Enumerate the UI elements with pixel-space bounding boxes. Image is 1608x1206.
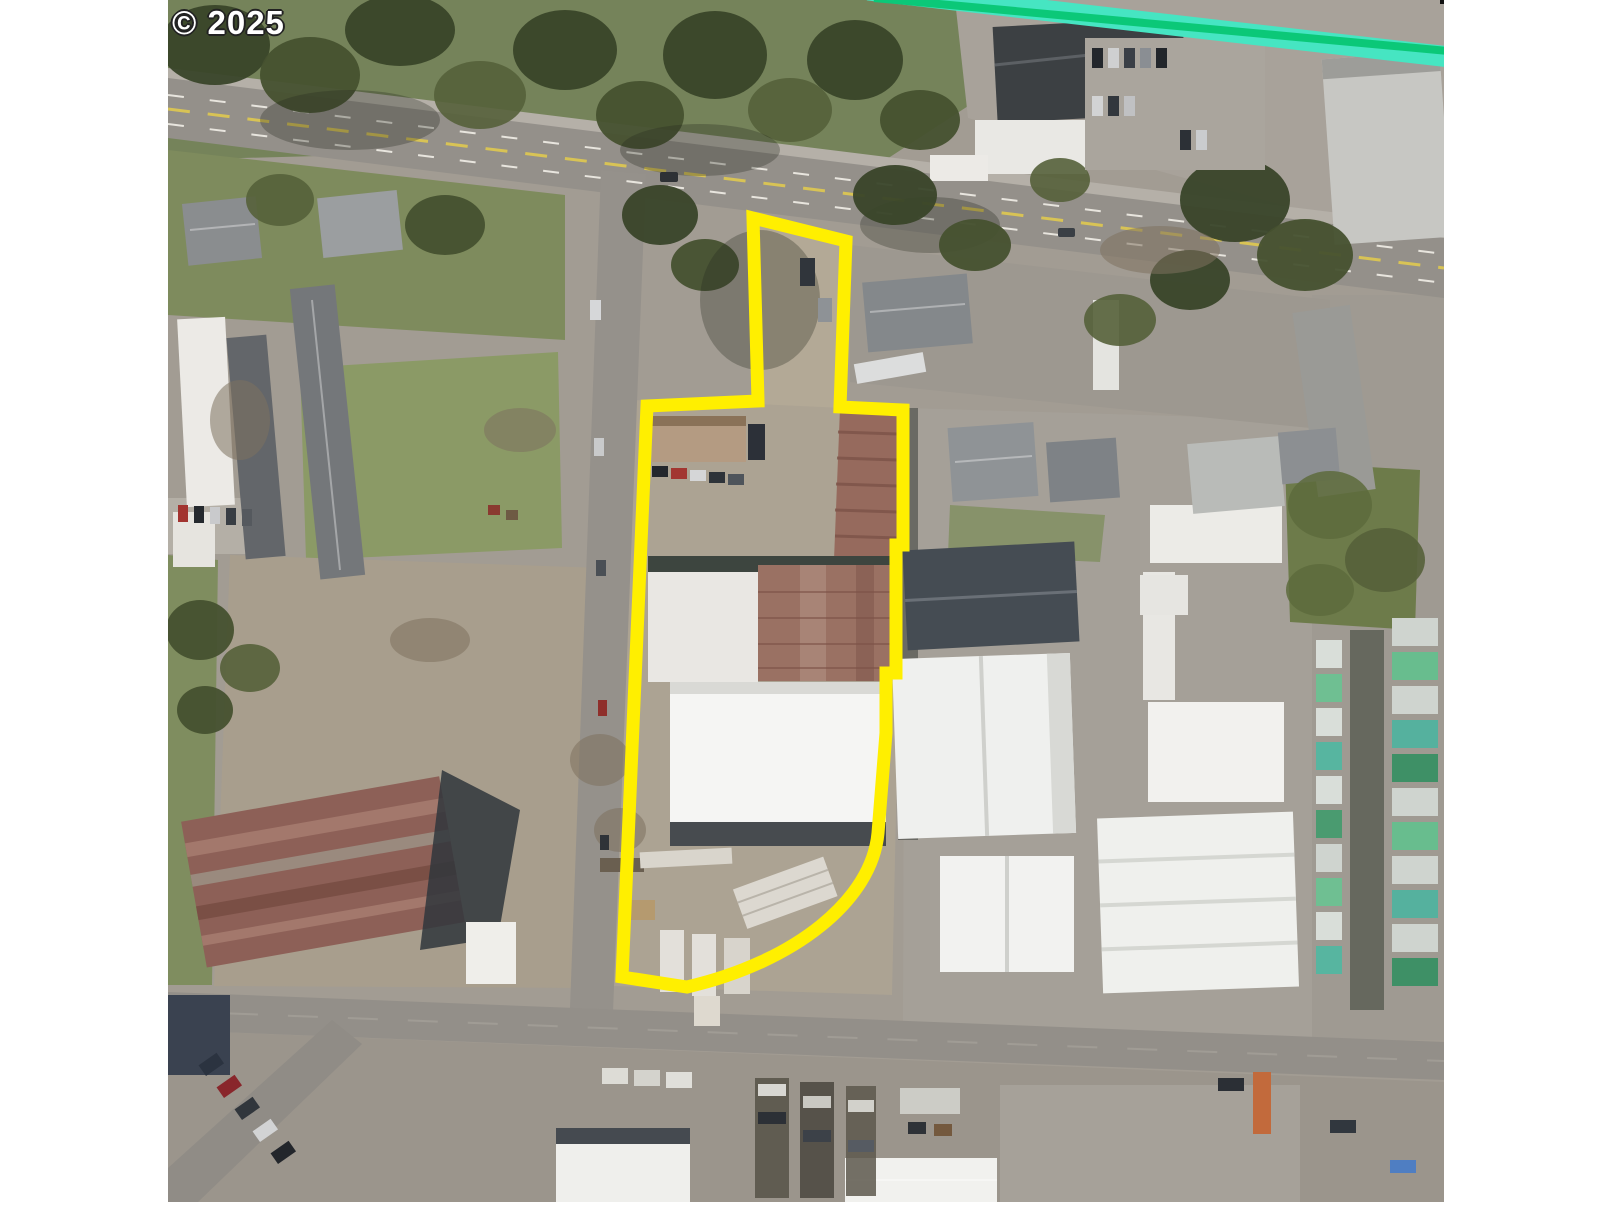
edge-tick [1440,0,1444,4]
page-background: © 2025 [0,0,1608,1206]
aerial-photo: © 2025 [168,0,1444,1202]
copyright-label: © 2025 [172,4,285,42]
